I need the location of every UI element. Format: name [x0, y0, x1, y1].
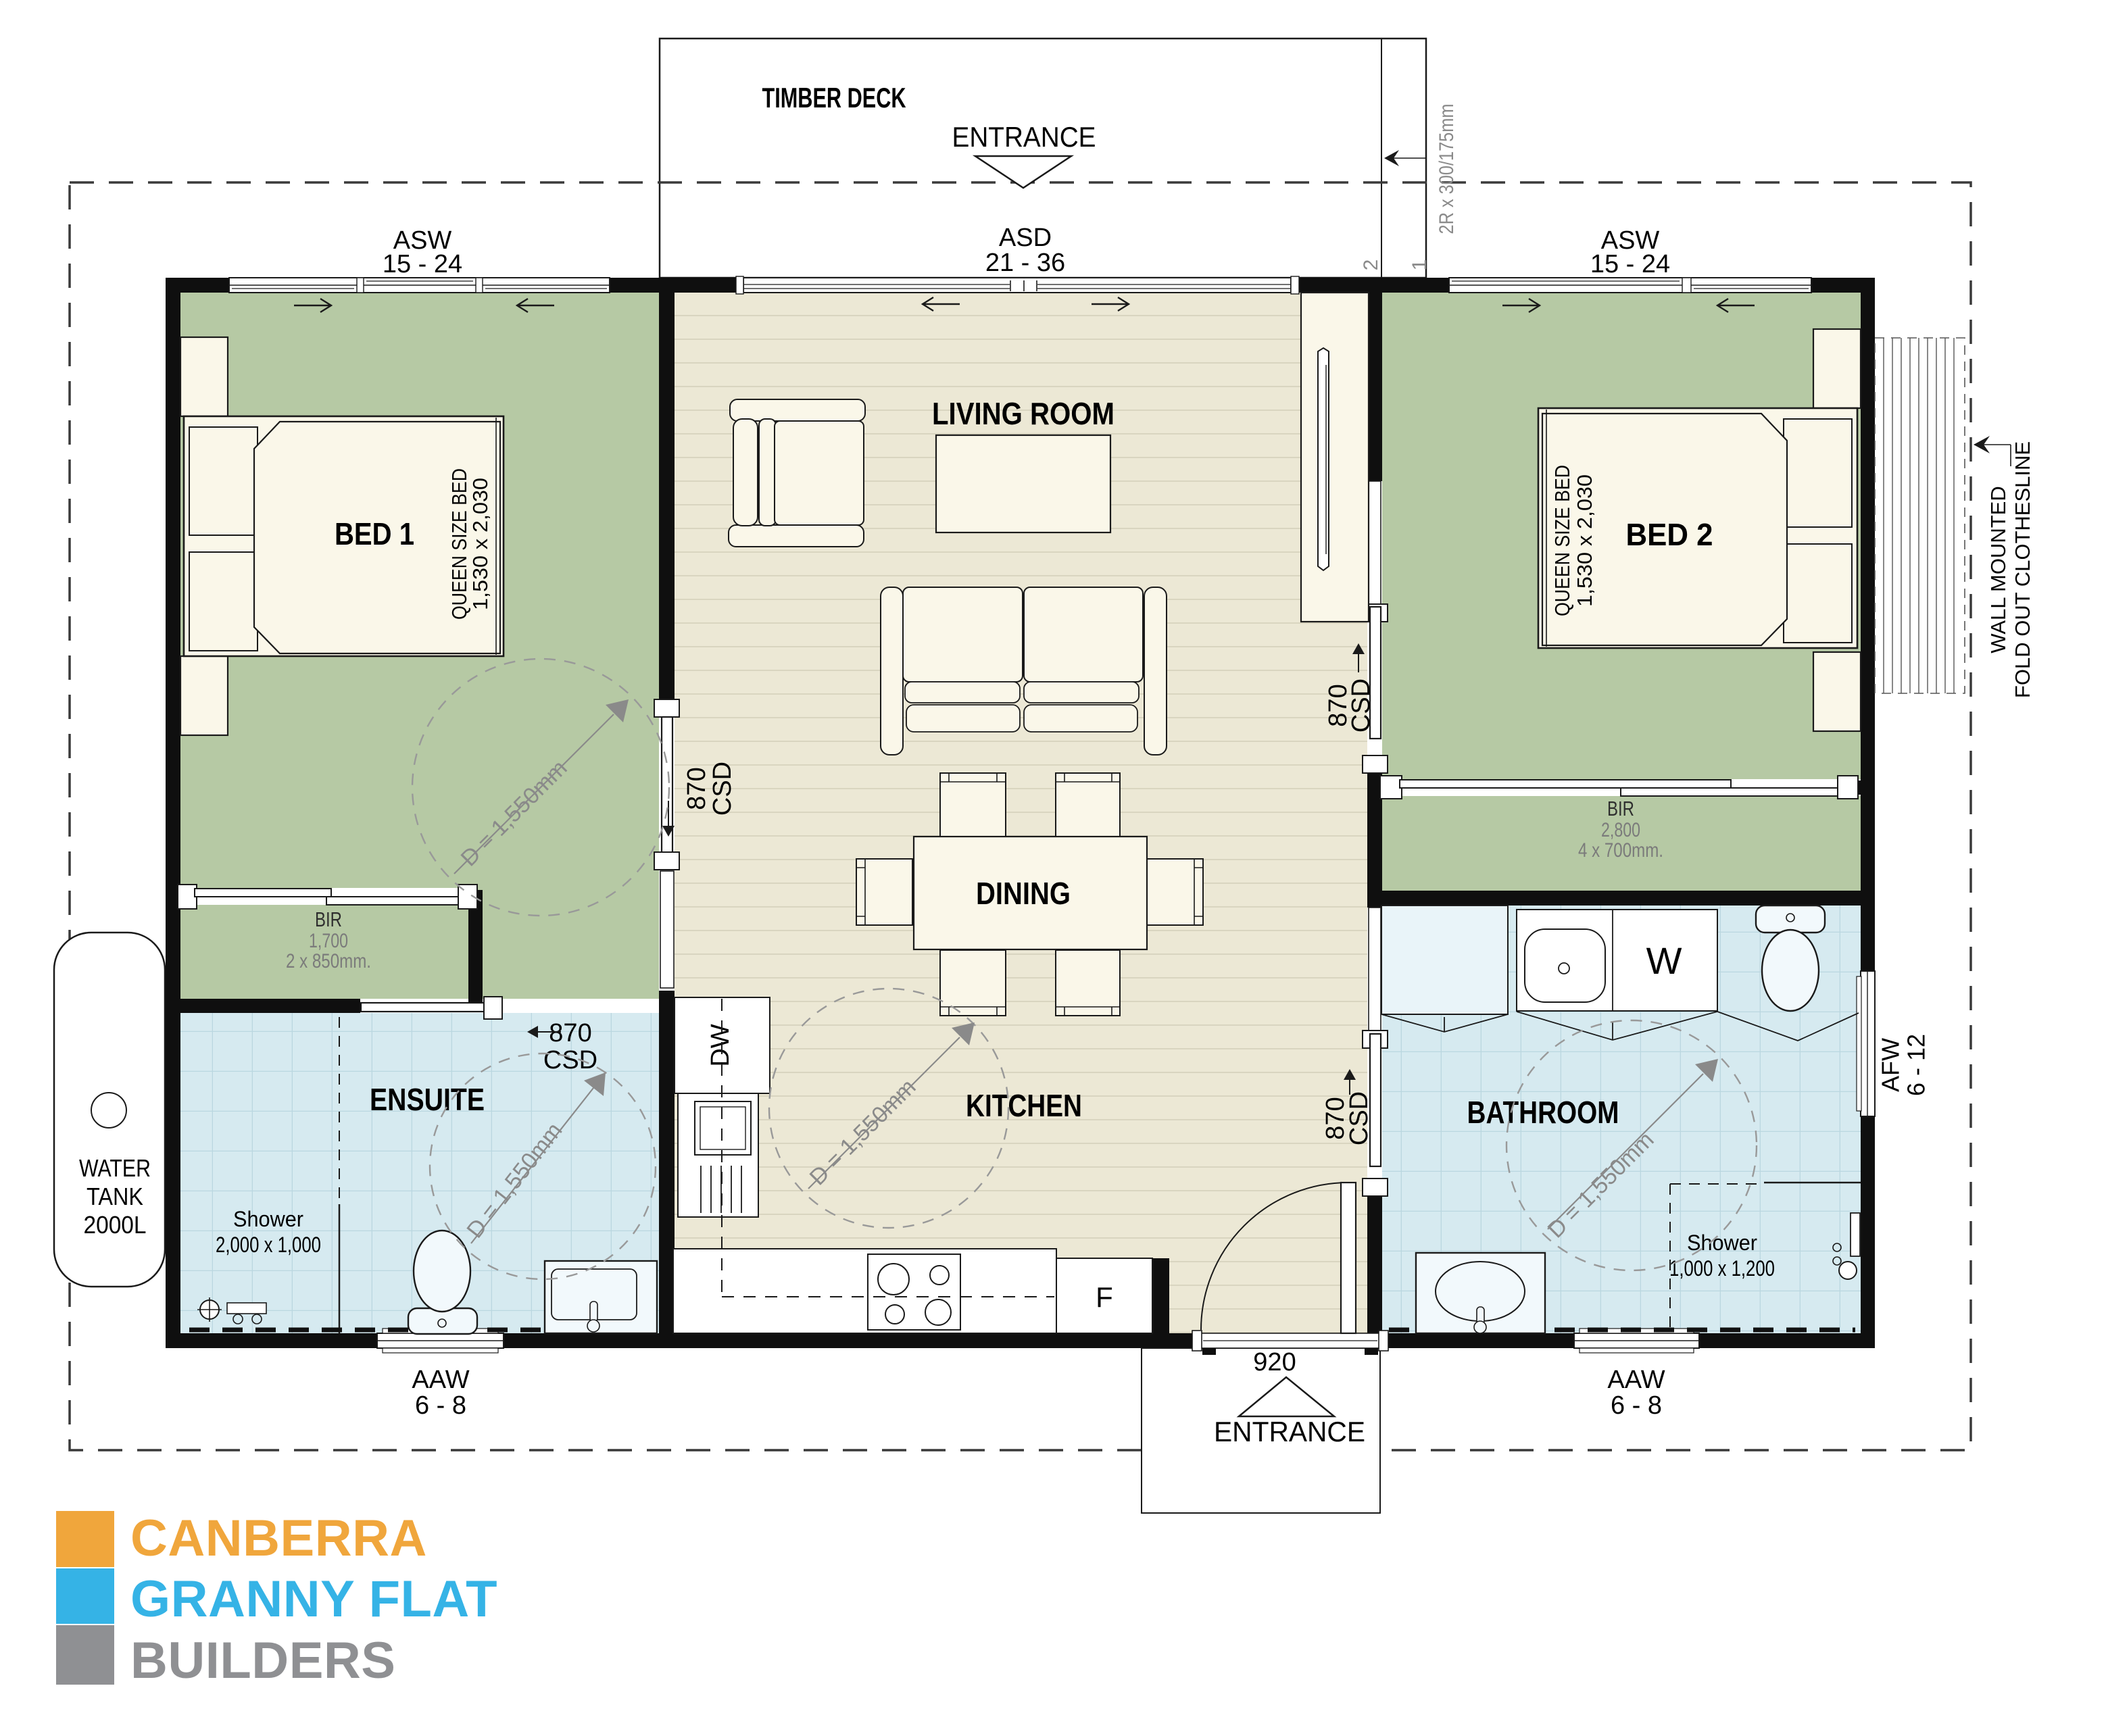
svg-text:WATER: WATER: [79, 1154, 151, 1182]
svg-text:BATHROOM: BATHROOM: [1467, 1095, 1619, 1130]
svg-text:BED 2: BED 2: [1626, 517, 1713, 552]
svg-text:ENTRANCE: ENTRANCE: [952, 121, 1096, 153]
svg-text:4 x 700mm.: 4 x 700mm.: [1578, 839, 1663, 862]
svg-text:LIVING ROOM: LIVING ROOM: [932, 396, 1115, 431]
svg-text:DW: DW: [706, 1024, 735, 1066]
svg-text:CSD: CSD: [1345, 1091, 1373, 1145]
svg-text:920: 920: [1253, 1348, 1296, 1377]
svg-text:Shower: Shower: [233, 1207, 303, 1231]
svg-text:1,000 x 1,200: 1,000 x 1,200: [1669, 1256, 1775, 1281]
svg-text:870: 870: [683, 767, 711, 810]
svg-text:CSD: CSD: [543, 1046, 597, 1074]
svg-text:BED 1: BED 1: [335, 516, 414, 551]
svg-text:FOLD OUT CLOTHESLINE: FOLD OUT CLOTHESLINE: [2011, 441, 2034, 698]
svg-text:BIR: BIR: [1607, 797, 1634, 820]
svg-text:15 - 24: 15 - 24: [1590, 250, 1670, 278]
svg-text:QUEEN SIZE BED: QUEEN SIZE BED: [1550, 465, 1574, 616]
svg-text:1,700: 1,700: [309, 930, 348, 952]
svg-text:1,530 x 2,030: 1,530 x 2,030: [1573, 474, 1596, 607]
svg-text:6 - 12: 6 - 12: [1903, 1034, 1930, 1096]
svg-text:15 - 24: 15 - 24: [383, 250, 462, 278]
svg-text:W: W: [1646, 939, 1682, 982]
svg-text:CSD: CSD: [1347, 678, 1375, 733]
svg-text:WALL MOUNTED: WALL MOUNTED: [1986, 486, 2010, 653]
svg-text:CANBERRA: CANBERRA: [130, 1510, 427, 1567]
svg-text:2 x 850mm.: 2 x 850mm.: [286, 950, 371, 972]
svg-text:BIR: BIR: [315, 908, 342, 931]
svg-text:6 - 8: 6 - 8: [1611, 1391, 1662, 1420]
svg-text:AAW: AAW: [1607, 1366, 1665, 1394]
svg-text:ASD: ASD: [999, 224, 1052, 252]
svg-text:2: 2: [1360, 259, 1382, 271]
svg-text:TANK: TANK: [87, 1183, 143, 1210]
svg-text:DINING: DINING: [976, 876, 1071, 911]
svg-text:2000L: 2000L: [84, 1211, 147, 1239]
svg-text:CSD: CSD: [708, 762, 737, 816]
svg-text:1,530 x 2,030: 1,530 x 2,030: [468, 478, 492, 610]
svg-text:AFW: AFW: [1877, 1038, 1905, 1092]
svg-text:GRANNY FLAT: GRANNY FLAT: [130, 1570, 497, 1628]
svg-text:6 - 8: 6 - 8: [415, 1391, 466, 1420]
svg-text:QUEEN SIZE BED: QUEEN SIZE BED: [447, 468, 471, 620]
svg-text:ENTRANCE: ENTRANCE: [1214, 1416, 1365, 1447]
svg-text:TIMBER DECK: TIMBER DECK: [762, 82, 906, 114]
svg-text:21 - 36: 21 - 36: [985, 249, 1065, 277]
svg-text:AAW: AAW: [412, 1366, 469, 1394]
svg-text:ENSUITE: ENSUITE: [370, 1082, 485, 1117]
svg-text:2,000 x 1,000: 2,000 x 1,000: [216, 1233, 321, 1257]
svg-text:2R x 300/175mm: 2R x 300/175mm: [1436, 104, 1458, 234]
svg-text:KITCHEN: KITCHEN: [966, 1088, 1082, 1123]
svg-text:1: 1: [1409, 259, 1431, 271]
svg-text:870: 870: [549, 1019, 591, 1047]
svg-text:2,800: 2,800: [1601, 819, 1640, 841]
svg-text:F: F: [1096, 1281, 1113, 1313]
svg-text:BUILDERS: BUILDERS: [130, 1632, 395, 1689]
